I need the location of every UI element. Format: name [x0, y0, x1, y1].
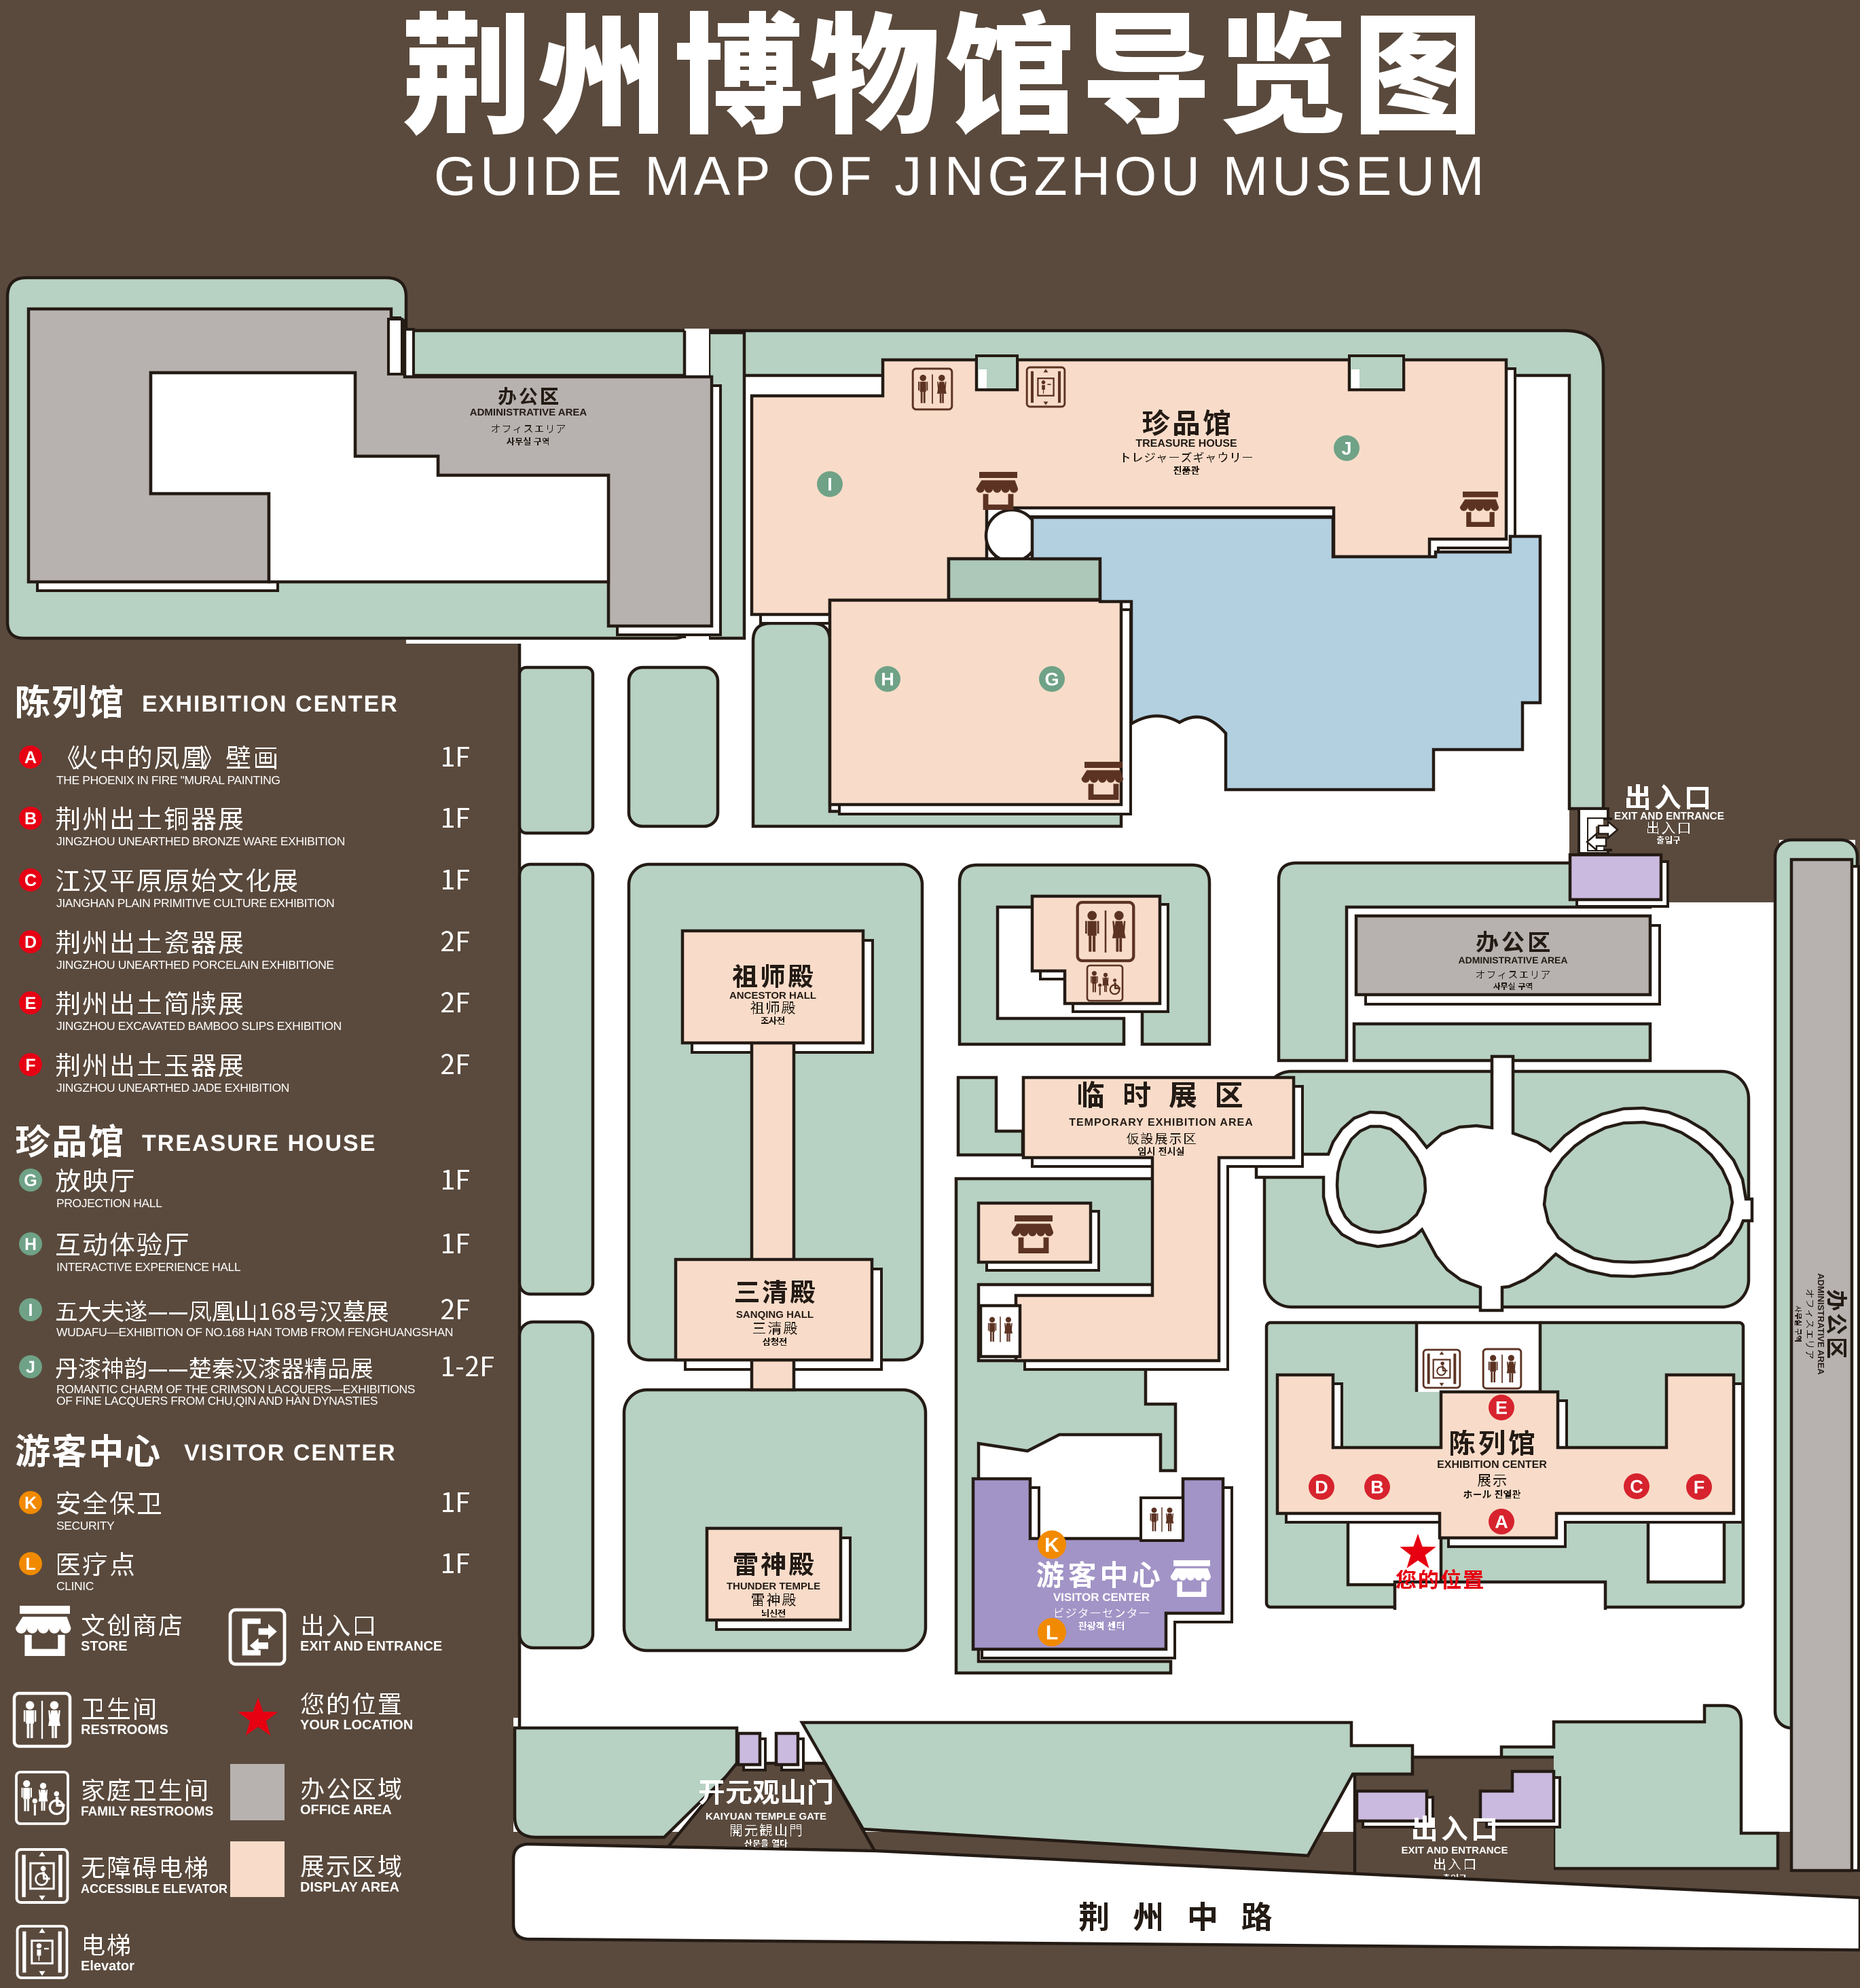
svg-text:CLINIC: CLINIC: [56, 1579, 94, 1593]
svg-text:K: K: [24, 1494, 37, 1513]
svg-text:SECURITY: SECURITY: [56, 1519, 115, 1532]
svg-text:JINGZHOU UNEARTHED BRONZE WARE: JINGZHOU UNEARTHED BRONZE WARE EXHIBITIO…: [56, 834, 345, 848]
svg-text:WUDAFU—EXHIBITION OF NO.168 HA: WUDAFU—EXHIBITION OF NO.168 HAN TOMB FRO…: [56, 1325, 453, 1339]
svg-text:EXIT AND ENTRANCE: EXIT AND ENTRANCE: [1614, 811, 1724, 822]
svg-text:INTERACTIVE EXPERIENCE HALL: INTERACTIVE EXPERIENCE HALL: [56, 1260, 241, 1274]
svg-text:J: J: [26, 1358, 35, 1377]
svg-text:VISITOR CENTER: VISITOR CENTER: [184, 1440, 397, 1466]
svg-text:B: B: [24, 809, 37, 828]
svg-text:THUNDER TEMPLE: THUNDER TEMPLE: [727, 1581, 820, 1592]
svg-text:B: B: [1370, 1477, 1384, 1498]
svg-text:FAMILY RESTROOMS: FAMILY RESTROOMS: [81, 1805, 213, 1819]
svg-text:EXIT AND ENTRANCE: EXIT AND ENTRANCE: [1402, 1845, 1508, 1856]
svg-text:KAIYUAN TEMPLE GATE: KAIYUAN TEMPLE GATE: [706, 1811, 826, 1822]
svg-text:L: L: [1046, 1622, 1058, 1644]
svg-text:E: E: [25, 994, 37, 1013]
svg-text:EXIT AND ENTRANCE: EXIT AND ENTRANCE: [300, 1639, 442, 1654]
svg-text:SANQING HALL: SANQING HALL: [736, 1309, 814, 1321]
svg-text:YOUR LOCATION: YOUR LOCATION: [300, 1718, 413, 1733]
svg-text:J: J: [1341, 439, 1351, 459]
svg-text:G: G: [24, 1171, 37, 1190]
svg-text:OFFICE AREA: OFFICE AREA: [300, 1803, 392, 1818]
svg-text:I: I: [29, 1301, 33, 1320]
svg-text:JINGZHOU UNEARTHED PORCELAIN E: JINGZHOU UNEARTHED PORCELAIN EXHIBITIONE: [56, 958, 334, 972]
svg-text:ADMINISTRATIVE AREA: ADMINISTRATIVE AREA: [1816, 1273, 1826, 1375]
svg-text:A: A: [1495, 1512, 1508, 1532]
svg-text:OF FINE LACQUERS FROM CHU,QIN: OF FINE LACQUERS FROM CHU,QIN AND HAN DY…: [56, 1394, 378, 1407]
svg-text:D: D: [1315, 1477, 1328, 1498]
svg-text:VISITOR CENTER: VISITOR CENTER: [1053, 1591, 1150, 1604]
svg-text:D: D: [24, 933, 37, 952]
svg-text:PROJECTION HALL: PROJECTION HALL: [56, 1196, 162, 1210]
svg-text:JINGZHOU UNEARTHED JADE EXHIBI: JINGZHOU UNEARTHED JADE EXHIBITION: [56, 1081, 289, 1094]
svg-text:E: E: [1495, 1398, 1508, 1418]
svg-text:GUIDE MAP OF JINGZHOU MUSEUM: GUIDE MAP OF JINGZHOU MUSEUM: [434, 146, 1488, 207]
svg-text:C: C: [1630, 1477, 1643, 1497]
svg-text:Elevator: Elevator: [81, 1959, 134, 1974]
svg-text:EXHIBITION CENTER: EXHIBITION CENTER: [1437, 1459, 1547, 1471]
svg-text:TREASURE HOUSE: TREASURE HOUSE: [1135, 438, 1237, 449]
svg-text:ADMINISTRATIVE AREA: ADMINISTRATIVE AREA: [1459, 955, 1568, 965]
svg-text:ANCESTOR HALL: ANCESTOR HALL: [729, 990, 816, 1001]
svg-text:TREASURE HOUSE: TREASURE HOUSE: [142, 1130, 376, 1156]
svg-text:H: H: [881, 669, 894, 690]
svg-text:TEMPORARY EXHIBITION AREA: TEMPORARY EXHIBITION AREA: [1069, 1117, 1254, 1128]
svg-text:ADMINISTRATIVE AREA: ADMINISTRATIVE AREA: [470, 407, 587, 418]
svg-text:RESTROOMS: RESTROOMS: [81, 1723, 168, 1737]
svg-text:K: K: [1044, 1534, 1059, 1557]
svg-text:ACCESSIBLE ELEVATOR: ACCESSIBLE ELEVATOR: [81, 1882, 227, 1896]
svg-text:C: C: [24, 871, 37, 890]
svg-text:THE PHOENIX IN FIRE "MURAL PAI: THE PHOENIX IN FIRE "MURAL PAINTING: [56, 773, 280, 787]
svg-text:G: G: [1044, 669, 1059, 690]
svg-text:EXHIBITION CENTER: EXHIBITION CENTER: [142, 691, 399, 717]
svg-text:JIANGHAN PLAIN PRIMITIVE CULTU: JIANGHAN PLAIN PRIMITIVE CULTURE EXHIBIT…: [56, 896, 334, 910]
svg-text:F: F: [25, 1056, 35, 1075]
svg-text:DISPLAY AREA: DISPLAY AREA: [300, 1880, 399, 1895]
svg-text:A: A: [24, 748, 37, 767]
svg-text:H: H: [24, 1235, 37, 1254]
svg-text:I: I: [827, 475, 833, 495]
svg-text:L: L: [25, 1555, 35, 1574]
svg-text:STORE: STORE: [81, 1639, 128, 1654]
svg-text:JINGZHOU EXCAVATED BAMBOO SLIP: JINGZHOU EXCAVATED BAMBOO SLIPS EXHIBITI…: [56, 1019, 342, 1033]
svg-text:F: F: [1694, 1477, 1705, 1498]
